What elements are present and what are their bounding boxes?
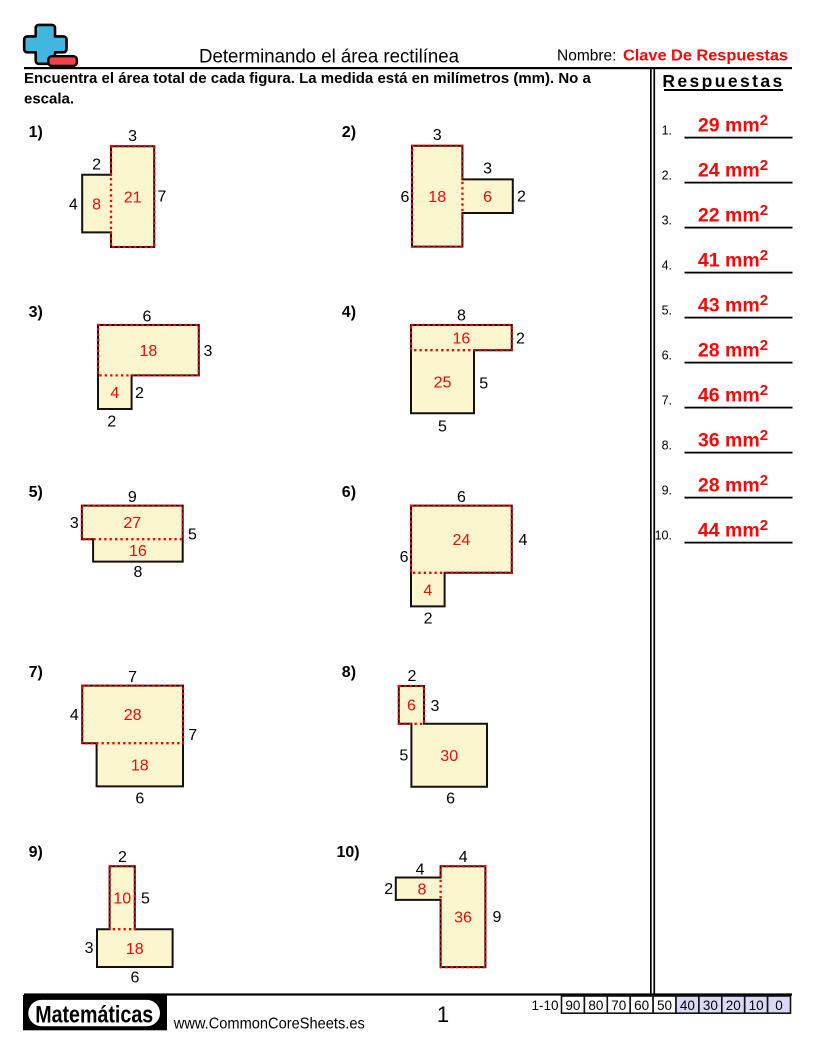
svg-text:8: 8 (133, 564, 142, 581)
svg-text:24 mm2: 24 mm2 (698, 157, 768, 182)
svg-text:6: 6 (131, 970, 140, 987)
svg-text:9): 9) (29, 844, 43, 861)
svg-text:Nombre:: Nombre: (557, 48, 616, 65)
svg-text:8: 8 (457, 308, 466, 325)
svg-text:30: 30 (440, 748, 458, 765)
svg-text:1: 1 (437, 1002, 449, 1027)
svg-text:4: 4 (69, 197, 78, 214)
svg-text:0: 0 (775, 998, 783, 1013)
svg-text:4: 4 (459, 849, 468, 866)
svg-text:9: 9 (492, 909, 501, 926)
svg-text:2: 2 (407, 668, 416, 685)
svg-text:6: 6 (135, 791, 144, 808)
svg-text:6.: 6. (662, 349, 672, 363)
svg-text:5: 5 (188, 527, 197, 544)
svg-text:28: 28 (124, 707, 142, 724)
svg-text:4.: 4. (662, 259, 672, 273)
svg-text:8.: 8. (662, 439, 672, 453)
svg-text:3.: 3. (662, 214, 672, 228)
svg-text:5: 5 (141, 890, 150, 907)
svg-text:5: 5 (399, 748, 408, 765)
svg-text:8: 8 (418, 881, 427, 898)
svg-text:50: 50 (657, 998, 672, 1013)
svg-text:2: 2 (384, 881, 393, 898)
svg-text:4: 4 (110, 385, 119, 402)
svg-text:43 mm2: 43 mm2 (698, 292, 768, 317)
svg-text:5.: 5. (662, 304, 672, 318)
svg-text:70: 70 (611, 998, 626, 1013)
svg-text:Clave De Respuestas: Clave De Respuestas (623, 48, 788, 65)
svg-text:36 mm2: 36 mm2 (698, 427, 768, 452)
svg-text:3: 3 (128, 128, 137, 145)
svg-text:18: 18 (140, 343, 158, 360)
svg-text:3: 3 (85, 940, 94, 957)
svg-text:4): 4) (342, 304, 356, 321)
svg-text:1.: 1. (662, 124, 672, 138)
svg-text:2: 2 (135, 385, 144, 402)
svg-text:6: 6 (401, 189, 410, 206)
svg-text:90: 90 (565, 998, 580, 1013)
svg-text:60: 60 (634, 998, 649, 1013)
svg-text:30: 30 (703, 998, 718, 1013)
svg-text:2.: 2. (662, 169, 672, 183)
svg-text:8): 8) (342, 664, 356, 681)
svg-text:40: 40 (680, 998, 695, 1013)
svg-text:Matemáticas: Matemáticas (35, 1001, 153, 1028)
svg-text:3: 3 (430, 698, 439, 715)
svg-text:6: 6 (142, 309, 151, 326)
svg-text:9.: 9. (662, 484, 672, 498)
svg-text:7.: 7. (662, 394, 672, 408)
svg-text:28 mm2: 28 mm2 (698, 337, 768, 362)
svg-text:28 mm2: 28 mm2 (698, 472, 768, 497)
svg-text:6: 6 (457, 489, 466, 506)
svg-text:2: 2 (118, 849, 127, 866)
svg-text:6: 6 (483, 189, 492, 206)
svg-text:2: 2 (517, 189, 526, 206)
svg-text:9: 9 (128, 489, 137, 506)
svg-text:Determinando el área rectilíne: Determinando el área rectilínea (199, 47, 459, 68)
svg-text:7: 7 (128, 669, 137, 686)
svg-text:Respuestas: Respuestas (662, 71, 784, 91)
svg-text:46 mm2: 46 mm2 (698, 382, 768, 407)
svg-text:2: 2 (92, 157, 101, 174)
svg-text:3: 3 (70, 515, 79, 532)
svg-text:10: 10 (113, 890, 131, 907)
svg-text:7): 7) (29, 664, 43, 681)
svg-text:2: 2 (516, 330, 525, 347)
svg-text:5: 5 (438, 419, 447, 436)
svg-text:20: 20 (726, 998, 741, 1013)
svg-text:18: 18 (126, 941, 144, 958)
svg-text:18: 18 (131, 758, 149, 775)
svg-text:3): 3) (29, 304, 43, 321)
svg-text:7: 7 (158, 189, 167, 206)
svg-text:2: 2 (424, 611, 433, 628)
svg-text:4: 4 (416, 862, 425, 879)
svg-text:6: 6 (407, 698, 416, 715)
svg-text:22 mm2: 22 mm2 (698, 202, 768, 227)
svg-text:10): 10) (337, 844, 360, 861)
svg-text:36: 36 (454, 909, 472, 926)
svg-text:Encuentra el área total de cad: Encuentra el área total de cada figura. … (24, 70, 591, 87)
svg-text:24: 24 (453, 532, 471, 549)
svg-text:21: 21 (124, 189, 142, 206)
svg-text:5): 5) (29, 484, 43, 501)
svg-text:16: 16 (129, 543, 147, 560)
svg-text:27: 27 (123, 515, 141, 532)
svg-text:3: 3 (483, 161, 492, 178)
svg-text:1-10: 1-10 (531, 998, 558, 1013)
svg-text:6: 6 (446, 791, 455, 808)
svg-text:29 mm2: 29 mm2 (698, 112, 768, 137)
svg-text:www.CommonCoreSheets.es: www.CommonCoreSheets.es (173, 1016, 365, 1033)
svg-text:4: 4 (423, 582, 432, 599)
svg-text:8: 8 (92, 196, 101, 213)
svg-text:4: 4 (70, 707, 79, 724)
svg-text:18: 18 (428, 189, 446, 206)
svg-text:6: 6 (400, 549, 409, 566)
svg-text:6): 6) (342, 484, 356, 501)
svg-text:3: 3 (203, 343, 212, 360)
svg-text:3: 3 (433, 127, 442, 144)
svg-text:7: 7 (188, 727, 197, 744)
svg-text:41 mm2: 41 mm2 (698, 247, 768, 272)
svg-text:5: 5 (479, 375, 488, 392)
svg-text:1): 1) (29, 124, 43, 141)
svg-text:2): 2) (342, 124, 356, 141)
svg-text:escala.: escala. (24, 91, 74, 108)
svg-text:2: 2 (107, 414, 116, 431)
svg-text:44 mm2: 44 mm2 (698, 517, 768, 542)
svg-text:80: 80 (588, 998, 603, 1013)
svg-text:25: 25 (434, 374, 452, 391)
svg-text:16: 16 (453, 330, 471, 347)
svg-text:4: 4 (518, 532, 527, 549)
svg-text:10: 10 (749, 998, 764, 1013)
svg-text:10.: 10. (655, 529, 672, 543)
